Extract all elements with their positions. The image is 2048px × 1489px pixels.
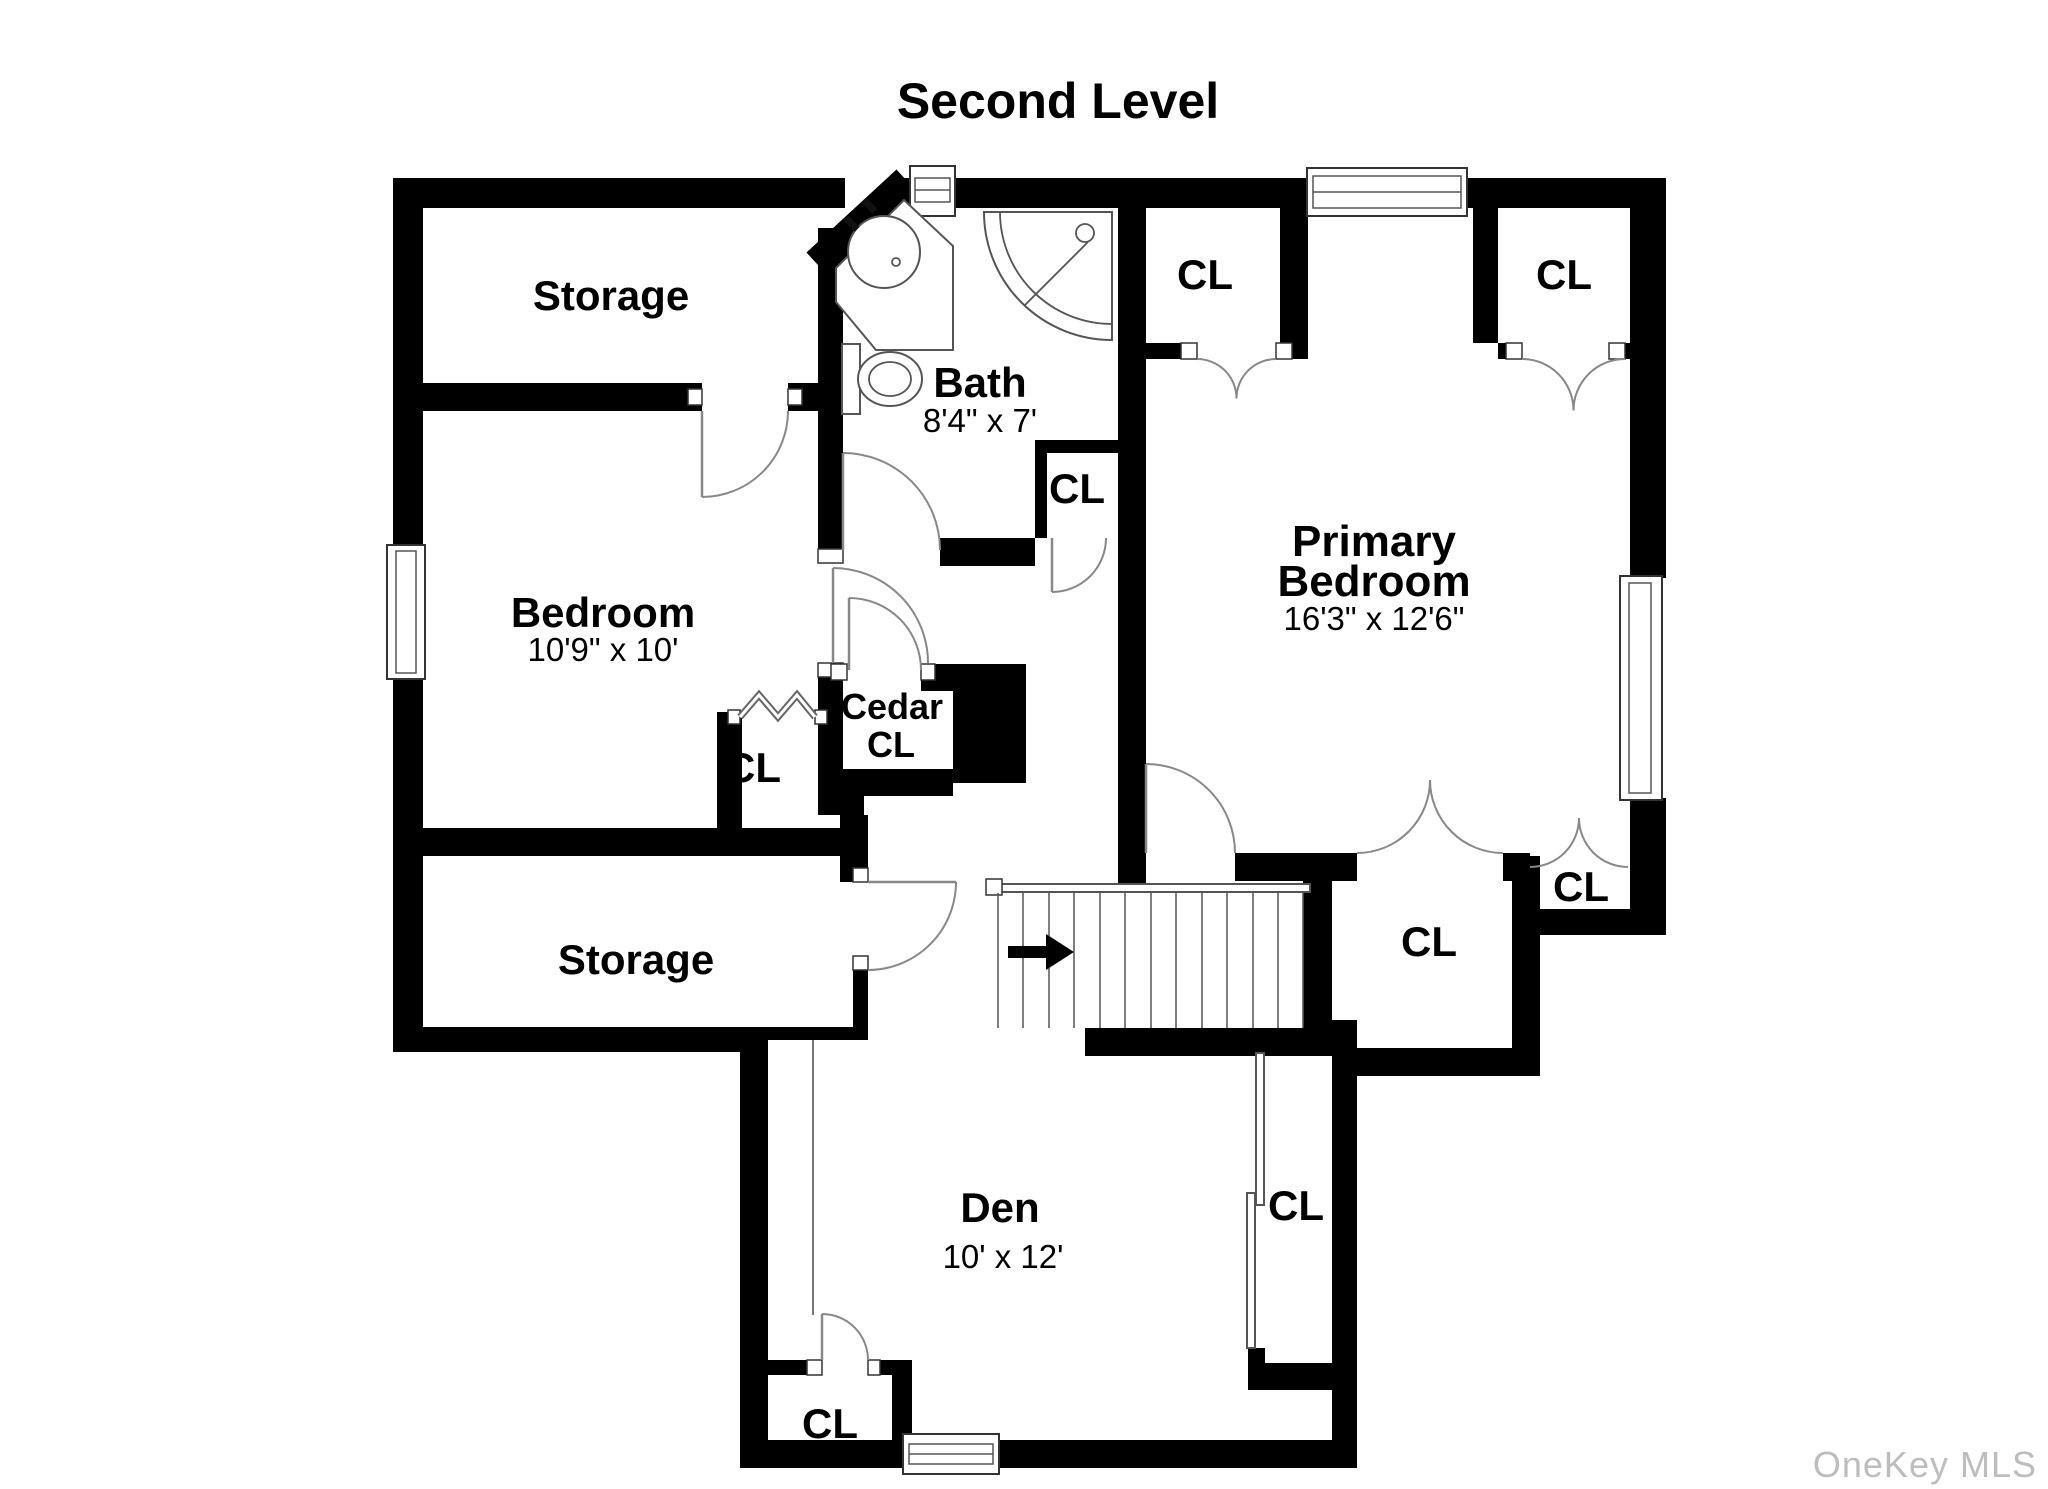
wall-segment <box>1503 853 1530 881</box>
room-dims-den: 10' x 12' <box>943 1238 1064 1275</box>
jamb <box>853 868 868 882</box>
window-primary-top <box>1307 168 1467 216</box>
sliding-door-panel <box>1256 1053 1264 1205</box>
wall-segment <box>740 1360 807 1375</box>
wall-segment <box>1332 1020 1357 1468</box>
wall-segment <box>393 178 423 547</box>
page-title: Second Level <box>897 73 1219 129</box>
room-dims-primary: 16'3" x 12'6" <box>1284 600 1465 637</box>
wall-segment <box>1235 853 1357 881</box>
room-label-cedar-line1: Cedar <box>841 686 943 727</box>
closet-label-primary-left: CL <box>1177 251 1233 298</box>
double-door-arcs <box>1522 359 1625 411</box>
wall-segment <box>1146 343 1181 359</box>
door-arc <box>1052 538 1106 592</box>
jamb <box>1181 343 1197 359</box>
wall-segment <box>1625 343 1666 359</box>
room-label-bath: Bath <box>933 359 1026 406</box>
jamb <box>815 710 827 724</box>
chimney <box>953 664 1026 783</box>
wall-segment <box>843 769 953 796</box>
wall-segment <box>1292 343 1308 359</box>
shower-icon <box>984 212 1112 340</box>
wall-segment <box>393 178 845 208</box>
closet-label-hall-small: CL <box>1553 863 1609 910</box>
stair-rail <box>990 884 1310 892</box>
door-arc <box>843 453 940 550</box>
jamb <box>1506 343 1522 359</box>
stair-direction-arrow <box>1008 934 1074 970</box>
floor-plan-canvas: Second Level Storage Bedroom 10'9" x 10'… <box>0 0 2048 1489</box>
closet-label-den-east: CL <box>1268 1182 1324 1229</box>
stairs <box>986 879 1310 1028</box>
labels: Second Level Storage Bedroom 10'9" x 10'… <box>511 73 2037 1485</box>
window-den-bottom <box>903 1434 999 1474</box>
jamb <box>1609 343 1625 359</box>
double-door-arcs <box>1197 359 1276 399</box>
wall-segment <box>1118 208 1146 884</box>
stair-newel <box>986 879 1002 895</box>
jamb <box>788 389 802 405</box>
toilet-icon <box>842 344 922 414</box>
floor-plan-page: Second Level Storage Bedroom 10'9" x 10'… <box>0 0 2048 1489</box>
sliding-door-panel <box>1247 1193 1255 1348</box>
wall-segment <box>1118 853 1146 881</box>
wall-segment <box>892 1360 912 1442</box>
room-dims-bedroom: 10'9" x 10' <box>528 631 679 668</box>
room-label-storage-bottom: Storage <box>558 936 714 983</box>
closet-label-hall-large: CL <box>1401 918 1457 965</box>
wall-segment <box>1473 208 1498 343</box>
jamb <box>818 549 843 563</box>
door-arc <box>833 568 928 663</box>
jamb <box>868 1360 880 1375</box>
double-door-arcs <box>1357 780 1503 853</box>
wall-segment <box>393 677 423 1052</box>
jamb <box>831 664 847 680</box>
closet-label-primary-right: CL <box>1536 251 1592 298</box>
door-arc <box>868 882 956 970</box>
wall-segment <box>1512 856 1540 1076</box>
door-arc <box>1146 764 1235 853</box>
window-primary-right <box>1620 576 1662 800</box>
room-label-bedroom: Bedroom <box>511 589 695 636</box>
room-label-primary-line2: Bedroom <box>1277 557 1470 606</box>
wall-segment <box>890 178 1666 208</box>
wall-segment <box>1630 178 1666 578</box>
window-bath-top <box>910 166 955 216</box>
wall-segment <box>393 383 702 411</box>
door-arc <box>702 411 788 497</box>
stair-treads <box>998 893 1303 1028</box>
jamb <box>807 1360 822 1375</box>
wall-segment <box>768 1027 868 1040</box>
closet-label-bedroom: CL <box>725 744 781 791</box>
room-label-cedar-line2: CL <box>867 724 915 765</box>
wall-segment <box>1035 440 1047 538</box>
jamb <box>853 956 868 970</box>
room-dims-bath: 8'4" x 7' <box>923 402 1037 439</box>
double-door-arcs <box>1530 818 1628 867</box>
wall-segment <box>1035 440 1118 453</box>
window-bedroom-left <box>387 545 425 679</box>
wall-segment <box>393 1027 768 1052</box>
closet-label-den-southwest: CL <box>802 1400 858 1447</box>
wall-segment <box>940 538 1035 566</box>
wall-segment <box>880 1360 892 1375</box>
closet-label-bath: CL <box>1049 465 1105 512</box>
door-arc <box>822 1314 868 1360</box>
jamb <box>921 664 935 680</box>
wall-segment <box>1085 1028 1332 1056</box>
watermark: OneKey MLS <box>1813 1444 2037 1485</box>
wall-segment <box>740 1052 768 1468</box>
jamb <box>1276 343 1292 359</box>
wall-segment <box>1280 208 1308 343</box>
wall-segment <box>853 970 868 1027</box>
room-label-storage-top: Storage <box>533 272 689 319</box>
wall-segment <box>1248 1040 1262 1053</box>
wall-segment <box>1248 1348 1265 1390</box>
jamb <box>688 389 702 405</box>
wall-segment <box>1332 1048 1540 1076</box>
room-label-den: Den <box>960 1184 1039 1231</box>
wall-segment <box>818 663 843 797</box>
wall-segment <box>1530 909 1666 935</box>
jamb <box>728 710 740 724</box>
wall-segment <box>393 828 843 856</box>
